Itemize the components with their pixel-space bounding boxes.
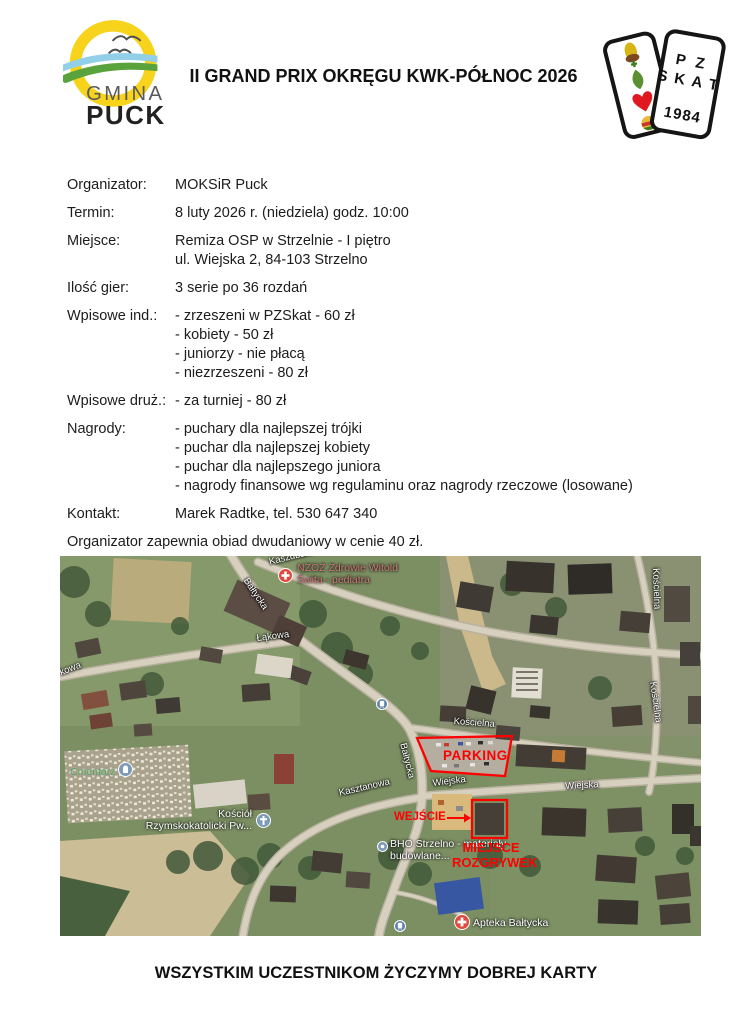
detail-value: - kobiety - 50 zł (175, 326, 752, 345)
detail-row-organizator: Organizator: MOKSiR Puck (67, 176, 752, 195)
detail-label: Kontakt: (67, 505, 175, 524)
church-poi-icon (256, 813, 271, 828)
detail-row-termin: Termin: 8 luty 2026 r. (niedziela) godz.… (67, 204, 752, 223)
pzskat-logo: P Z S K A T 1984 (598, 20, 738, 146)
pharmacy-poi-icon (454, 914, 470, 930)
bus-stop-icon (394, 920, 406, 932)
detail-value: - puchar dla najlepszego juniora (175, 458, 752, 477)
detail-value: - juniorzy - nie płacą (175, 345, 752, 364)
detail-value: - nagrody finansowe wg regulaminu oraz n… (175, 477, 752, 496)
tournament-details: Organizator: MOKSiR Puck Termin: 8 luty … (67, 176, 752, 524)
gmina-logo-text-2: PUCK (86, 100, 165, 130)
detail-label: Termin: (67, 204, 175, 223)
detail-value: - puchar dla najlepszej kobiety (175, 439, 752, 458)
detail-row-miejsce: Miejsce: Remiza OSP w Strzelnie - I pięt… (67, 232, 752, 270)
detail-value: Remiza OSP w Strzelnie - I piętro (175, 232, 752, 251)
detail-value: MOKSiR Puck (175, 176, 752, 195)
detail-value: 8 luty 2026 r. (niedziela) godz. 10:00 (175, 204, 752, 223)
header: GMINA PUCK II GRAND PRIX OKRĘGU KWK-PÓŁN… (0, 0, 752, 146)
detail-label: Nagrody: (67, 420, 175, 496)
detail-label: Wpisowe druż.: (67, 392, 175, 411)
detail-value: - puchary dla najlepszej trójki (175, 420, 752, 439)
detail-row-kontakt: Kontakt: Marek Radtke, tel. 530 647 340 (67, 505, 752, 524)
annotation-parking: PARKING (443, 748, 508, 763)
annotation-venue: MIEJSCE ROZGRYWEK (452, 840, 530, 870)
page-title: II GRAND PRIX OKRĘGU KWK-PÓŁNOC 2026 (169, 20, 598, 87)
detail-value: ul. Wiejska 2, 84-103 Strzelno (175, 251, 752, 270)
detail-value: - za turniej - 80 zł (175, 392, 752, 411)
poi-nzoz: NZOZ Zdrowie Witold Świta - pediatra (297, 562, 398, 586)
detail-row-ilosc-gier: Ilość gier: 3 serie po 36 rozdań (67, 279, 752, 298)
detail-row-nagrody: Nagrody: - puchary dla najlepszej trójki… (67, 420, 752, 496)
detail-row-wpisowe-ind: Wpisowe ind.: - zrzeszeni w PZSkat - 60 … (67, 307, 752, 383)
street-label-koscielna-upper: Kościelna (650, 568, 662, 610)
detail-label: Ilość gier: (67, 279, 175, 298)
flyer-page: GMINA PUCK II GRAND PRIX OKRĘGU KWK-PÓŁN… (0, 0, 752, 1024)
detail-value: - niezrzeszeni - 80 zł (175, 364, 752, 383)
location-map: Kaszubska Bałtycka Łąkowa kowa Kościelna… (60, 556, 701, 936)
street-label-wiejska-right: Wiejska (565, 779, 599, 792)
cemetery-poi-icon (118, 762, 133, 777)
health-poi-icon (278, 568, 293, 583)
annotation-entrance: WEJŚCIE (394, 811, 446, 823)
detail-row-wpisowe-druz: Wpisowe druż.: - za turniej - 80 zł (67, 392, 752, 411)
detail-label: Organizator: (67, 176, 175, 195)
gmina-puck-logo: GMINA PUCK (63, 20, 169, 130)
detail-value: Marek Radtke, tel. 530 647 340 (175, 505, 752, 524)
map-satellite-base (60, 556, 701, 936)
detail-value: 3 serie po 36 rozdań (175, 279, 752, 298)
detail-label: Miejsce: (67, 232, 175, 270)
pzskat-front-card: P Z S K A T 1984 (648, 30, 727, 139)
detail-label: Wpisowe ind.: (67, 307, 175, 383)
poi-kosciol: Kościół Rzymskokatolicki Pw... (144, 808, 252, 832)
poi-cmentarz: Cmentarz (70, 766, 116, 778)
dinner-note: Organizator zapewnia obiad dwudaniowy w … (67, 533, 752, 552)
footer-wish: WSZYSTKIM UCZESTNIKOM ŻYCZYMY DOBREJ KAR… (0, 964, 752, 983)
poi-apteka: Apteka Bałtycka (473, 917, 548, 929)
bus-stop-icon (376, 698, 388, 710)
detail-value: - zrzeszeni w PZSkat - 60 zł (175, 307, 752, 326)
store-poi-icon (377, 841, 388, 852)
